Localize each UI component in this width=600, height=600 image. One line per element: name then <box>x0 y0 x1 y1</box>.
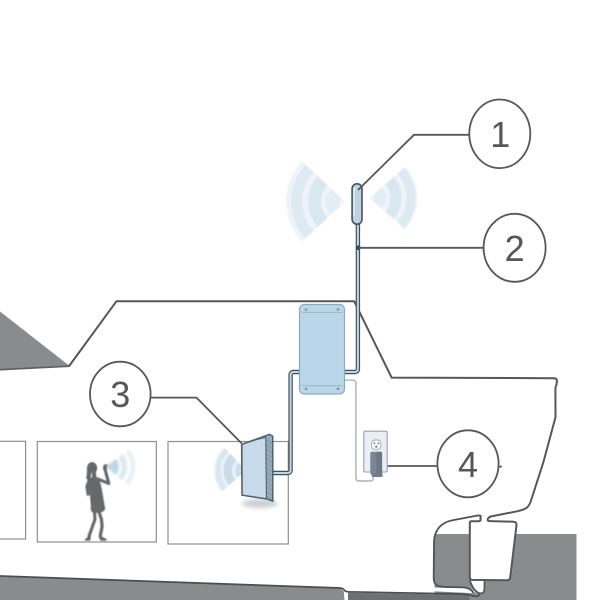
svg-text:2: 2 <box>505 228 525 269</box>
svg-text:3: 3 <box>110 374 130 415</box>
svg-text:1: 1 <box>490 114 510 155</box>
svg-text:4: 4 <box>458 444 478 485</box>
